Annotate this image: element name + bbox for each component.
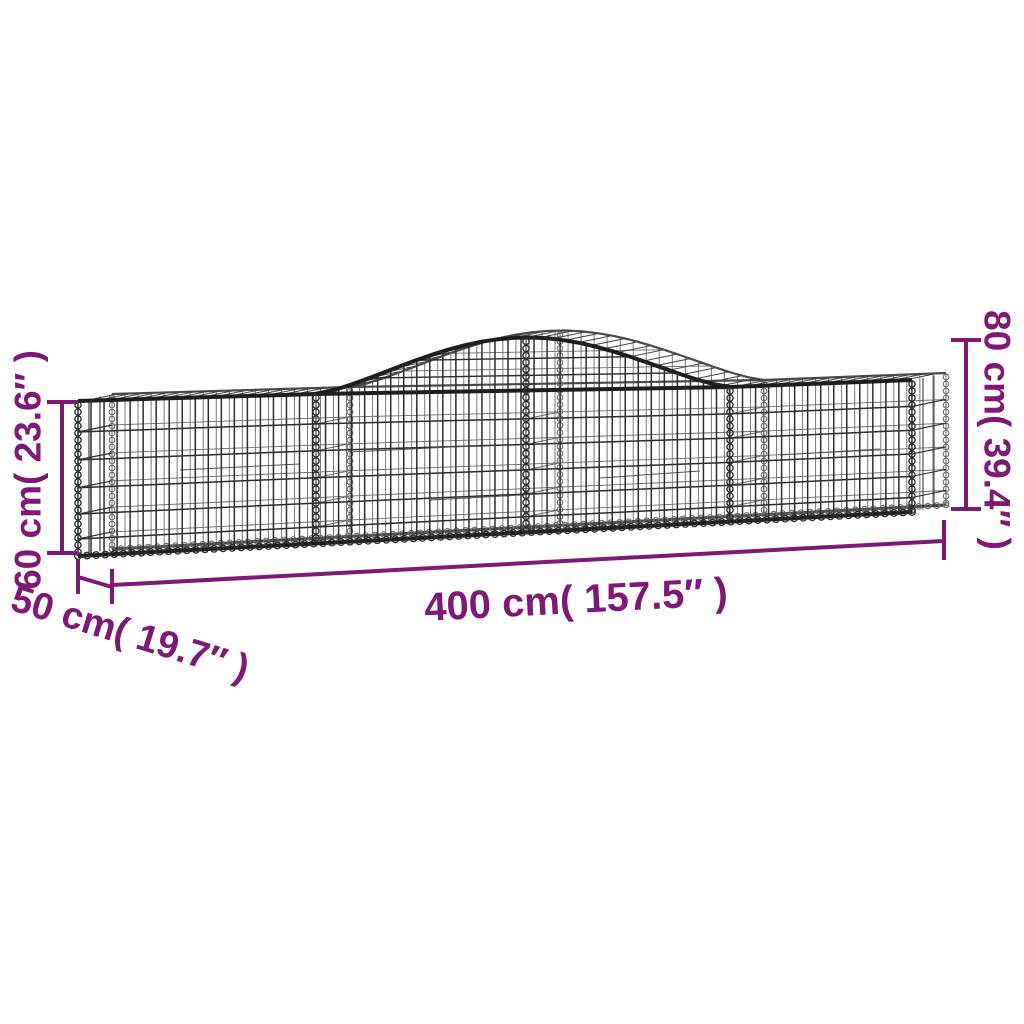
dimension-height-left: 60 cm( 23.6″ ) <box>8 350 79 590</box>
dimension-label-length: 400 cm( 157.5″ ) <box>423 570 729 630</box>
dimension-length: 400 cm( 157.5″ ) <box>112 520 944 630</box>
dimension-height-right: 80 cm( 39.4″ ) <box>951 310 1018 550</box>
product-dimension-diagram: 60 cm( 23.6″ ) 50 cm( 19.7″ ) 400 cm( 15… <box>0 0 1024 1024</box>
product-image: 60 cm( 23.6″ ) 50 cm( 19.7″ ) 400 cm( 15… <box>0 0 1024 1024</box>
dimension-label-height-right: 80 cm( 39.4″ ) <box>977 310 1018 550</box>
dimension-label-depth: 50 cm( 19.7″ ) <box>6 578 254 690</box>
gabion-basket-wireframe <box>75 330 949 559</box>
dimension-label-height-left: 60 cm( 23.6″ ) <box>8 350 49 590</box>
depth-line <box>78 577 112 587</box>
